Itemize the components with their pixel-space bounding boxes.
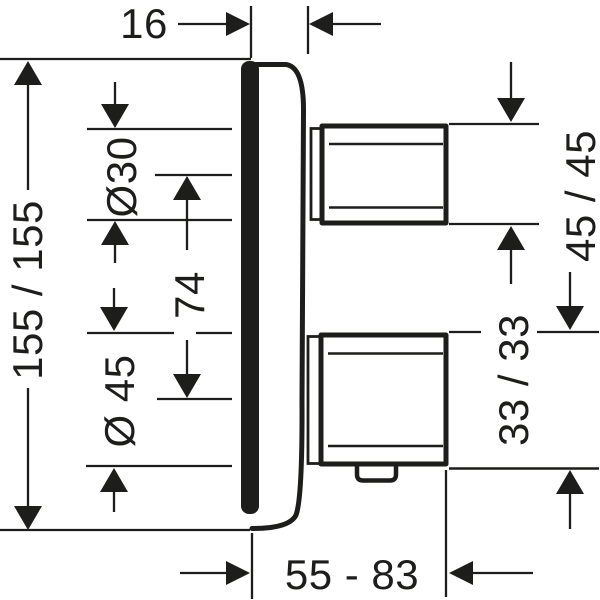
arrowhead-up-icon — [556, 470, 584, 494]
arrowhead-down-icon — [100, 307, 128, 331]
dim-upper-sleeve-diameter: Ø30 — [87, 82, 232, 263]
dim-label-plate-depth: 16 — [120, 0, 168, 47]
plate-edge-bar — [241, 61, 259, 514]
arrowhead-left-icon — [309, 12, 333, 36]
arrowhead-down-icon — [14, 506, 42, 530]
arrowhead-up-icon — [173, 176, 201, 200]
dim-plate-depth: 16 — [120, 0, 381, 58]
arrowhead-right-icon — [226, 561, 250, 585]
arrowhead-up-icon — [497, 226, 525, 250]
arrowhead-down-icon — [556, 306, 584, 330]
dim-lower-handle: 33 / 33 — [449, 272, 599, 529]
lower-handle-side-view — [308, 335, 446, 481]
lower-handle-sleeve — [308, 337, 320, 464]
technical-drawing: 16 155 / 155 Ø30 74 — [0, 0, 600, 600]
arrowhead-down-icon — [173, 374, 201, 398]
dim-label-depth-range: 55 - 83 — [285, 551, 419, 598]
arrowhead-left-icon — [449, 561, 473, 585]
plate-side-view — [241, 61, 304, 529]
lower-handle-tab — [357, 466, 396, 481]
dim-label-plate-size: 155 / 155 — [4, 200, 51, 380]
arrowhead-down-icon — [497, 98, 525, 122]
arrowhead-up-icon — [101, 221, 129, 245]
arrowhead-right-icon — [226, 12, 250, 36]
dim-handle-distance: 74 — [155, 175, 232, 399]
dim-label-upper-sleeve: Ø30 — [98, 137, 145, 218]
dim-label-upper-handle: 45 / 45 — [557, 130, 600, 262]
plate-front-silhouette — [252, 65, 304, 529]
dim-depth-range: 55 - 83 — [180, 470, 533, 599]
arrowhead-up-icon — [14, 61, 42, 85]
drawing-canvas: 16 155 / 155 Ø30 74 — [0, 0, 600, 600]
dim-label-lower-handle: 33 / 33 — [490, 314, 537, 446]
dim-label-handle-distance: 74 — [166, 271, 213, 319]
dim-upper-handle: 45 / 45 — [449, 62, 600, 284]
arrowhead-down-icon — [101, 104, 129, 128]
dim-label-lower-sleeve: Ø 45 — [96, 354, 143, 447]
arrowhead-up-icon — [100, 468, 128, 492]
upper-handle-side-view — [311, 126, 446, 223]
